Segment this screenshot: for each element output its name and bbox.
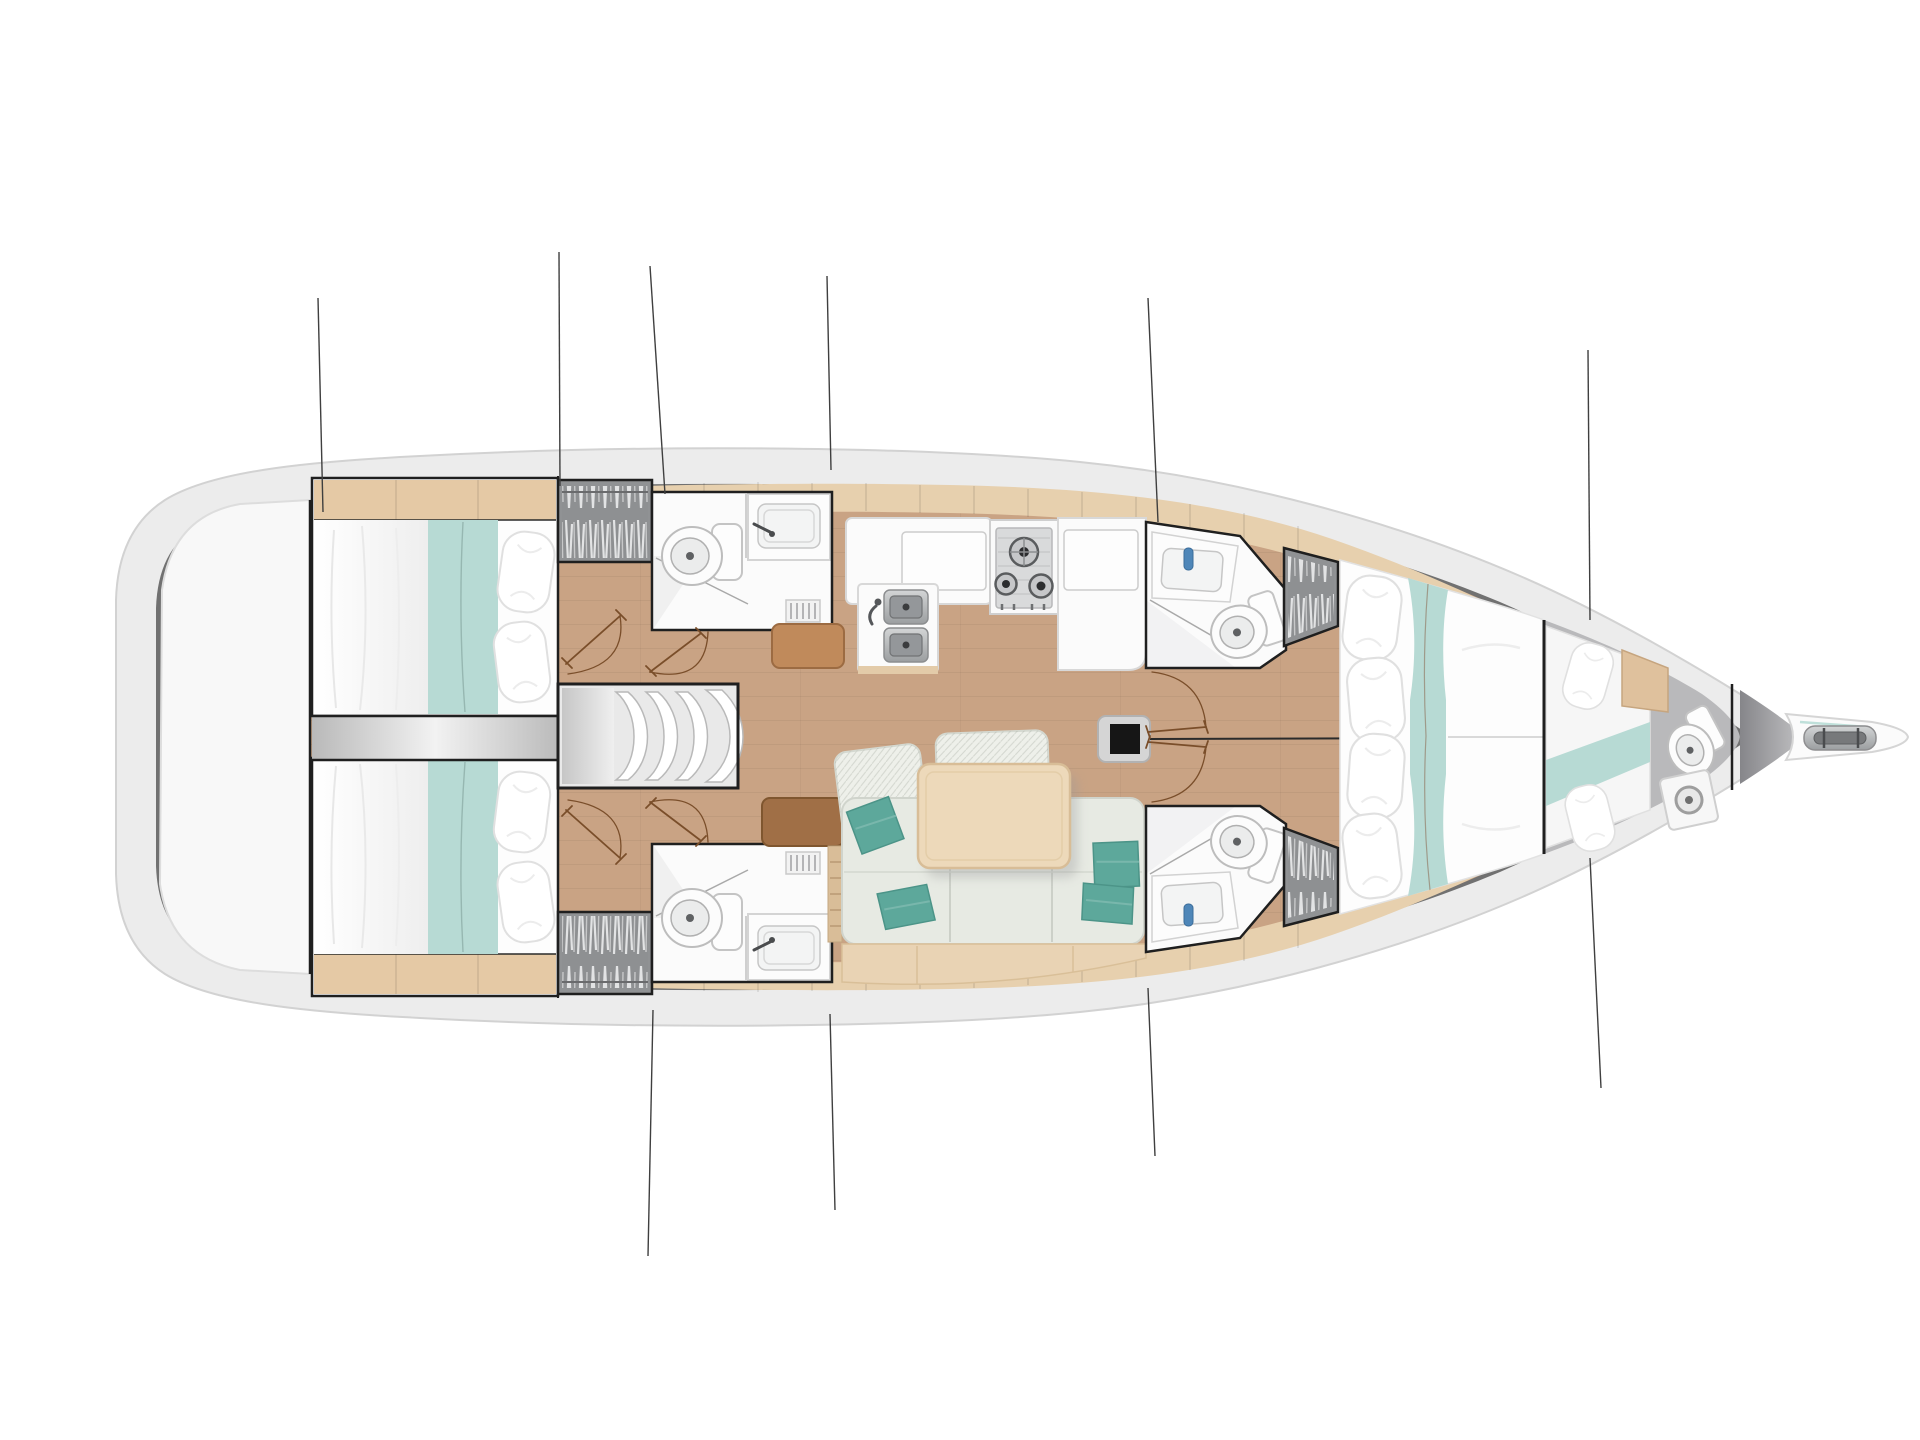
- yacht-floorplan-page: [0, 0, 1920, 1440]
- yacht-floorplan: [0, 0, 1920, 1440]
- transom-platform: [160, 500, 310, 974]
- stove-burner: [1030, 575, 1053, 598]
- nav-seat-starboard: [762, 798, 844, 846]
- stove-burner: [1010, 538, 1038, 566]
- aft-cabin-starboard: [312, 758, 558, 996]
- salon-table: [918, 764, 1070, 868]
- owner-cabin: [1340, 560, 1544, 914]
- shroud-line: [559, 252, 560, 486]
- bed-runner: [1408, 578, 1448, 896]
- aft-head-port: [652, 492, 832, 630]
- mast-foot: [1098, 716, 1150, 762]
- wardrobe-aft-starboard: [558, 912, 652, 994]
- galley-stove: [990, 520, 1058, 614]
- aft-head-starboard: [652, 844, 832, 982]
- aft-cabin-port: [312, 478, 558, 716]
- stove-burner: [996, 574, 1017, 595]
- cabinet-speaker: [1659, 769, 1719, 830]
- counter-lid: [902, 532, 986, 590]
- nav-seat-port: [772, 624, 844, 668]
- mast-icon: [1110, 724, 1140, 754]
- wardrobe-aft-port: [558, 480, 652, 562]
- companionway-steps: [558, 684, 743, 788]
- engine-compartment: [312, 716, 558, 760]
